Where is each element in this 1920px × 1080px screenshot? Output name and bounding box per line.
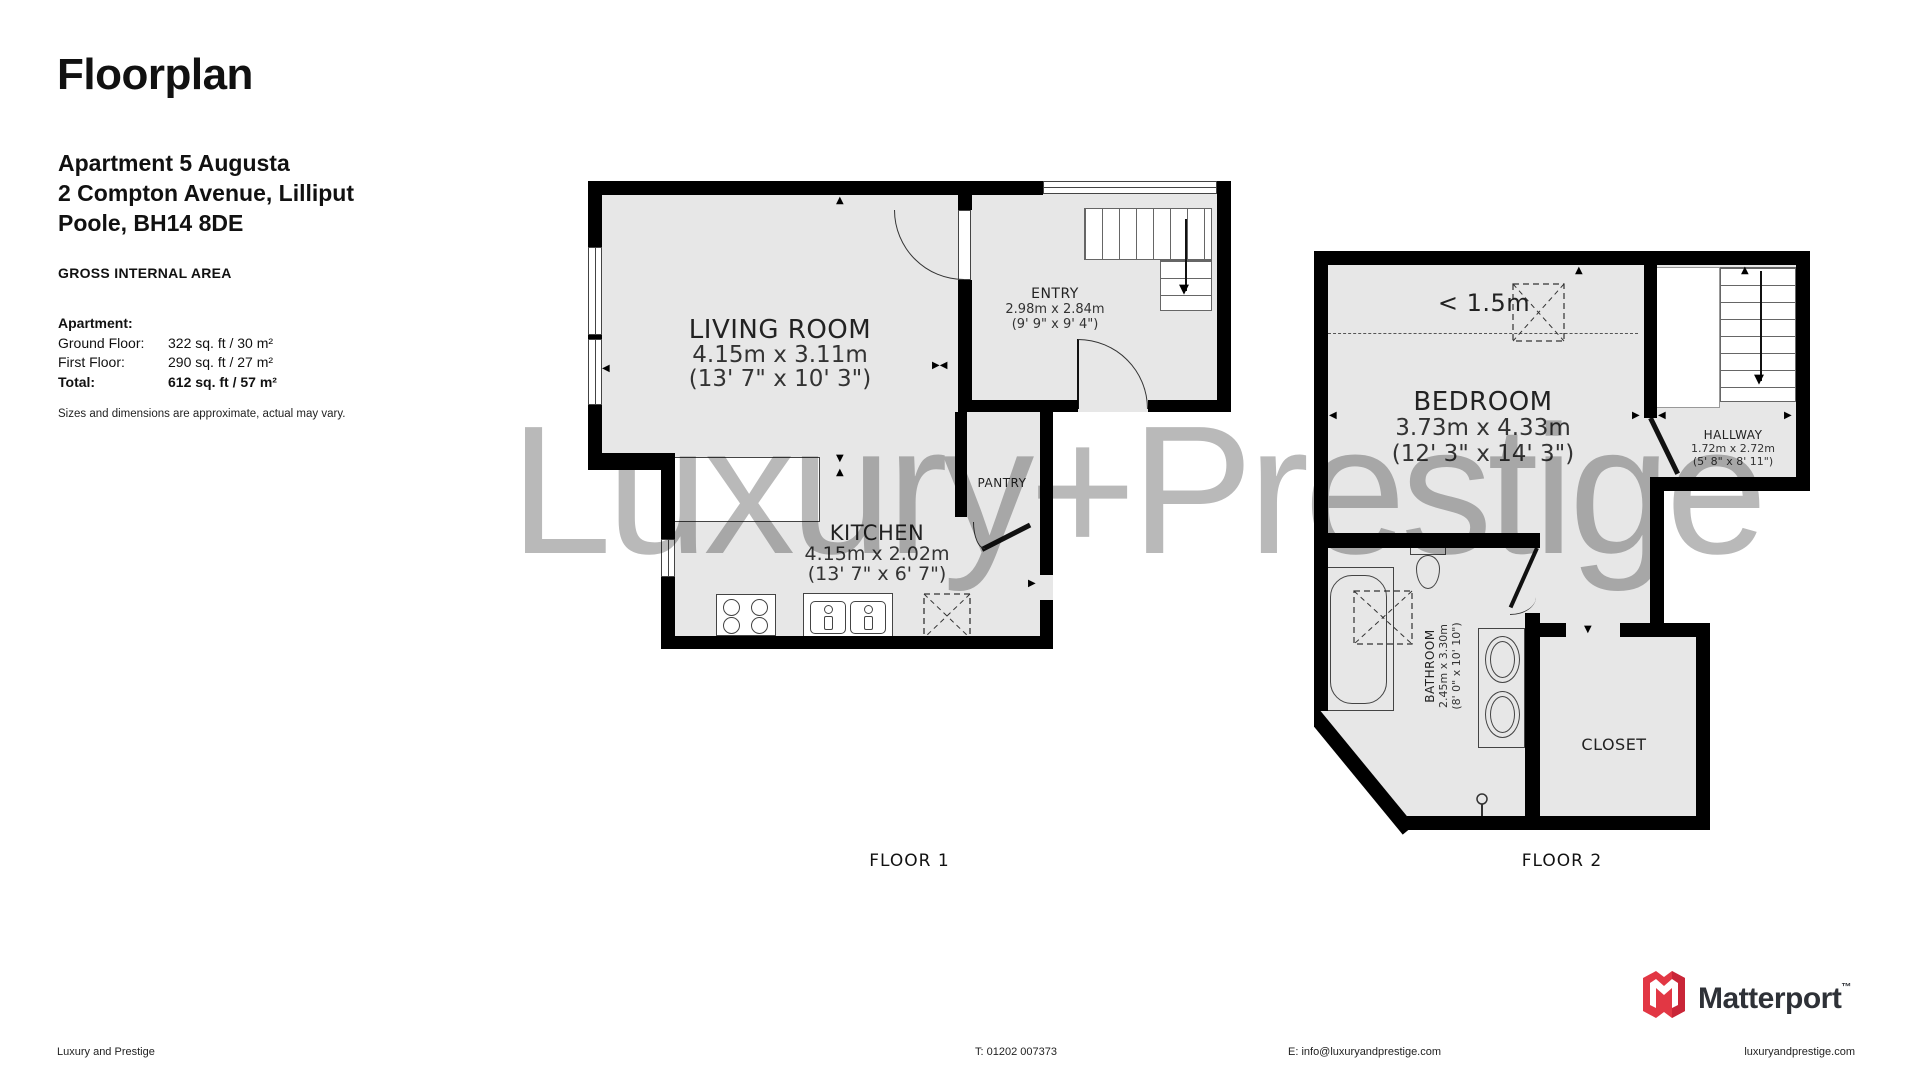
address-line-2: 2 Compton Avenue, Lilliput: [58, 178, 354, 208]
footer-company: Luxury and Prestige: [57, 1046, 155, 1058]
opening-marker-icon: ▼: [1584, 625, 1592, 635]
kitchen-sink-icon: [803, 593, 893, 639]
bathroom-label: BATHROOM 2.45m x 3.30m (8' 0" x 10' 10"): [1423, 606, 1467, 726]
window-top: [1043, 181, 1217, 194]
opening-marker-icon: ▶◀: [932, 361, 947, 371]
vanity-icon: [1478, 628, 1525, 748]
address-line-1: Apartment 5 Augusta: [58, 148, 354, 178]
row-value: 322 sq. ft / 30 m²: [168, 335, 273, 351]
footer-phone: T: 01202 007373: [975, 1046, 1057, 1058]
entry-label: ENTRY 2.98m x 2.84m (9' 9" x 9' 4"): [975, 286, 1135, 332]
stairs-direction-line: [1760, 271, 1762, 381]
footer-email: E: info@luxuryandprestige.com: [1288, 1046, 1441, 1058]
disclaimer-text: Sizes and dimensions are approximate, ac…: [58, 408, 345, 420]
watermark: Luxury+Prestige: [510, 398, 1762, 581]
floor2-caption: FLOOR 2: [1314, 851, 1810, 871]
window-left-upper: [588, 247, 602, 335]
row-label: First Floor:: [58, 353, 168, 373]
floor1-caption: FLOOR 1: [588, 851, 1231, 871]
area-table-group-label: Apartment:: [58, 314, 277, 334]
opening-marker-icon: ▲: [1741, 266, 1749, 276]
stairs-upper-treads: [1084, 208, 1212, 260]
row-value: 290 sq. ft / 27 m²: [168, 354, 273, 370]
row-value: 612 sq. ft / 57 m²: [168, 374, 277, 390]
opening-marker-icon: ▲: [1575, 266, 1583, 276]
stairs-down-arrow-icon: ▼: [1179, 285, 1189, 295]
opening-marker-icon: ◀: [602, 364, 610, 374]
opening-marker-icon: ▶: [1784, 411, 1792, 421]
shower-dashed-box-icon: [1353, 590, 1413, 645]
footer-website: luxuryandprestige.com: [1744, 1046, 1855, 1058]
matterport-wordmark: Matterport™: [1698, 982, 1851, 1016]
stairs-down-arrow-icon: ▼: [1754, 375, 1764, 385]
property-address: Apartment 5 Augusta 2 Compton Avenue, Li…: [58, 148, 354, 238]
appliance-dashed-box-icon: [923, 593, 971, 639]
row-label: Total:: [58, 373, 168, 393]
opening-marker-icon: ▲: [836, 196, 844, 206]
gross-internal-area-heading: GROSS INTERNAL AREA: [58, 265, 232, 281]
matterport-logo-icon: [1643, 971, 1685, 1019]
trademark-symbol: ™: [1841, 982, 1851, 993]
address-line-3: Poole, BH14 8DE: [58, 208, 354, 238]
row-label: Ground Floor:: [58, 334, 168, 354]
page-title: Floorplan: [57, 50, 253, 100]
table-row-total: Total:612 sq. ft / 57 m²: [58, 373, 277, 393]
area-table: Apartment: Ground Floor:322 sq. ft / 30 …: [58, 314, 277, 392]
headroom-dashed-line: [1328, 333, 1638, 334]
table-row: First Floor:290 sq. ft / 27 m²: [58, 353, 277, 373]
table-row: Ground Floor:322 sq. ft / 30 m²: [58, 334, 277, 354]
closet-label: CLOSET: [1554, 735, 1674, 754]
stove-icon: [716, 594, 776, 636]
living-room-label: LIVING ROOM 4.15m x 3.11m (13' 7" x 10' …: [602, 317, 958, 391]
stairs-direction-line: [1185, 219, 1187, 291]
floorplan-document: Floorplan Apartment 5 Augusta 2 Compton …: [0, 0, 1920, 1080]
headroom-note: < 1.5m: [1419, 289, 1549, 317]
